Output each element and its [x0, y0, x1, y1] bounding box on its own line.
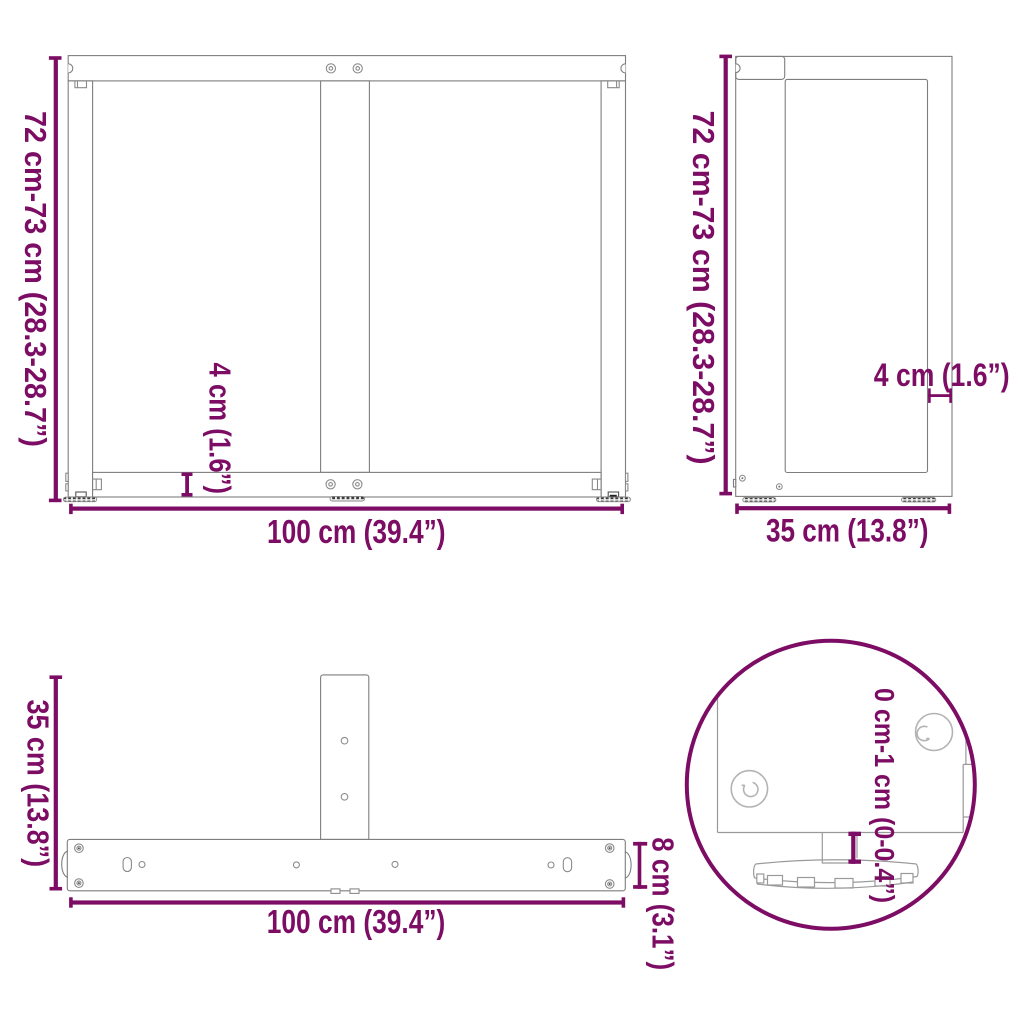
- svg-text:100 cm (39.4”): 100 cm (39.4”): [267, 513, 446, 550]
- svg-text:35 cm (13.8”): 35 cm (13.8”): [21, 700, 55, 868]
- svg-text:72 cm-73 cm (28.3-28.7”): 72 cm-73 cm (28.3-28.7”): [686, 111, 720, 465]
- svg-text:4 cm (1.6”): 4 cm (1.6”): [203, 363, 237, 495]
- svg-text:8 cm (3.1”): 8 cm (3.1”): [646, 837, 680, 970]
- svg-text:72 cm-73 cm (28.3-28.7”): 72 cm-73 cm (28.3-28.7”): [18, 111, 52, 447]
- svg-text:35 cm (13.8”): 35 cm (13.8”): [766, 513, 929, 549]
- svg-text:100 cm (39.4”): 100 cm (39.4”): [267, 903, 446, 940]
- svg-text:0 cm-1 cm (0-0.4”): 0 cm-1 cm (0-0.4”): [869, 688, 900, 903]
- svg-text:4 cm (1.6”): 4 cm (1.6”): [874, 357, 1010, 393]
